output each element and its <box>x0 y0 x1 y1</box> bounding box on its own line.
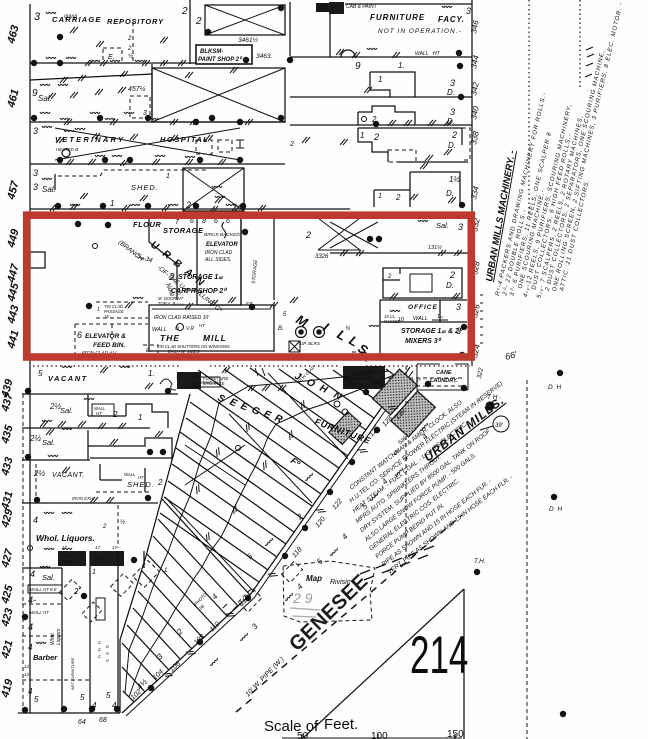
svg-text:T.H.: T.H. <box>474 558 486 565</box>
svg-text:4: 4 <box>28 622 33 632</box>
svg-text:HOSPITAL: HOSPITAL <box>160 135 209 144</box>
svg-text:Sal.: Sal. <box>38 94 52 103</box>
svg-text:214: 214 <box>410 625 468 685</box>
svg-text:1½: 1½ <box>449 175 460 184</box>
svg-text:ART FURNITURE: ART FURNITURE <box>70 658 75 691</box>
svg-text:12: 12 <box>24 664 30 669</box>
svg-text:6: 6 <box>226 218 230 225</box>
svg-text:MILL: MILL <box>203 333 227 343</box>
svg-text:IRON CLAD: IRON CLAD <box>205 250 233 256</box>
svg-text:8: 8 <box>202 218 206 225</box>
svg-text:3: 3 <box>456 326 461 336</box>
svg-text:2½: 2½ <box>29 434 41 443</box>
svg-text:Map: Map <box>306 574 322 583</box>
svg-text:4: 4 <box>33 515 38 525</box>
svg-text:2: 2 <box>181 6 188 17</box>
svg-text:1: 1 <box>378 193 382 200</box>
svg-text:3: 3 <box>450 107 455 117</box>
svg-text:WALL: WALL <box>413 316 428 322</box>
svg-text:5: 5 <box>106 691 111 700</box>
svg-text:ψψψ: ψψψ <box>64 14 78 20</box>
svg-text:1: 1 <box>378 75 382 84</box>
svg-text:2: 2 <box>168 272 175 283</box>
svg-text:2: 2 <box>373 132 379 142</box>
svg-text:1.: 1. <box>164 568 169 574</box>
svg-text:D.: D. <box>447 88 455 97</box>
svg-text:5: 5 <box>34 695 39 704</box>
svg-text:4-: 4- <box>28 595 36 605</box>
svg-text:1: 1 <box>97 307 100 313</box>
svg-text:2.: 2. <box>97 647 102 652</box>
svg-text:Barber: Barber <box>33 653 58 662</box>
svg-text:1: 1 <box>92 569 96 576</box>
svg-text:VETERINARY: VETERINARY <box>55 135 125 144</box>
svg-text:D H: D H <box>549 506 563 513</box>
svg-text:VACANT.: VACANT. <box>52 472 85 479</box>
svg-text:3: 3 <box>33 126 38 136</box>
svg-text:Sal.: Sal. <box>42 438 55 447</box>
svg-text:2: 2 <box>305 230 311 240</box>
svg-text:LAUNDRY.: LAUNDRY. <box>430 378 458 384</box>
svg-text:SHED.: SHED. <box>131 183 159 192</box>
svg-text:3: 3 <box>450 78 455 88</box>
svg-text:2: 2 <box>449 270 455 280</box>
svg-text:17: 17 <box>62 545 68 550</box>
svg-text:CARPR SHOP 2⁰: CARPR SHOP 2⁰ <box>171 287 227 295</box>
svg-text:10: 10 <box>398 317 405 323</box>
svg-text:2: 2 <box>112 410 118 419</box>
svg-text:¼: ¼ <box>345 326 350 332</box>
svg-text:3326: 3326 <box>315 254 329 260</box>
svg-text:1.: 1. <box>398 61 405 70</box>
svg-text:HT: HT <box>96 411 102 416</box>
svg-text:½: ½ <box>128 53 133 60</box>
svg-text:5: 5 <box>80 693 85 702</box>
svg-text:MIXERS 3⁰: MIXERS 3⁰ <box>405 337 442 345</box>
svg-text:NOT IN OPERATION.-: NOT IN OPERATION.- <box>378 28 462 35</box>
svg-text:D H: D H <box>548 384 562 391</box>
svg-text:1: 1 <box>138 413 142 422</box>
svg-text:CAB & PAINT: CAB & PAINT <box>346 4 378 10</box>
svg-text:1.: 1. <box>148 369 155 378</box>
svg-text:6: 6 <box>77 330 82 340</box>
svg-text:VACANT: VACANT <box>48 374 88 383</box>
svg-text:2.: 2. <box>97 640 102 645</box>
svg-text:2: 2 <box>127 46 132 52</box>
svg-text:2: 2 <box>127 36 132 42</box>
svg-text:ALL SIDES.: ALL SIDES. <box>204 257 232 263</box>
svg-text:BRICK BACKED: BRICK BACKED <box>204 232 240 238</box>
svg-text:WALL: WALL <box>415 51 429 57</box>
svg-text:THE: THE <box>160 333 180 343</box>
svg-text:17: 17 <box>95 545 101 550</box>
svg-text:Liquors: Liquors <box>56 628 62 645</box>
svg-text:3: 3 <box>458 222 463 232</box>
svg-text:IRON EXH.: IRON EXH. <box>72 496 94 501</box>
svg-text:64: 64 <box>78 719 86 726</box>
svg-text:IRON CLAD RAISED 10': IRON CLAD RAISED 10' <box>154 315 210 321</box>
svg-text:3461½: 3461½ <box>238 36 258 44</box>
svg-text:12: 12 <box>24 672 30 677</box>
svg-text:2: 2 <box>157 478 163 487</box>
svg-text:2: 2 <box>395 193 401 202</box>
svg-text:4: 4 <box>30 569 35 579</box>
svg-text:WALL HT: WALL HT <box>30 610 49 615</box>
svg-text:REPOSITORY: REPOSITORY <box>107 17 164 26</box>
svg-text:HT: HT <box>433 51 441 57</box>
svg-text:Sal.: Sal. <box>436 221 449 230</box>
svg-text:1ₛₜ: 1ₛₜ <box>437 314 444 320</box>
svg-text:FEED BIN.: FEED BIN. <box>93 342 125 349</box>
svg-text:V.R: V.R <box>186 326 194 332</box>
svg-text:2½: 2½ <box>33 469 45 478</box>
svg-text:FURNITURE: FURNITURE <box>370 13 425 22</box>
svg-text:4: 4 <box>28 687 33 696</box>
svg-text:2: 2 <box>102 524 107 530</box>
svg-text:6: 6 <box>190 218 194 225</box>
svg-text:2: 2 <box>451 130 457 140</box>
svg-text:131½: 131½ <box>428 244 442 251</box>
svg-text:2.: 2. <box>97 654 102 659</box>
svg-text:B.: B. <box>278 326 284 332</box>
svg-text:457½: 457½ <box>128 85 146 93</box>
svg-text:68: 68 <box>99 717 107 724</box>
svg-text:SHOP: SHOP <box>60 560 71 564</box>
svg-text:T H ·: T H · <box>487 394 501 401</box>
svg-text:6: 6 <box>214 218 218 225</box>
svg-text:UP. BLRS: UP. BLRS <box>300 341 320 346</box>
svg-text:1: 1 <box>360 131 364 140</box>
svg-text:2: 2 <box>195 16 202 27</box>
svg-text:3: 3 <box>33 182 38 192</box>
svg-text:2: 2 <box>393 450 398 457</box>
svg-text:50: 50 <box>297 731 309 739</box>
svg-text:2 9: 2 9 <box>292 590 313 606</box>
svg-text:B: B <box>106 644 109 649</box>
svg-text:PAINT SHOP 2⁰: PAINT SHOP 2⁰ <box>198 56 243 63</box>
svg-text:MACH.: MACH. <box>60 555 72 559</box>
svg-text:CANE: CANE <box>436 370 452 376</box>
svg-text:1: 1 <box>110 199 114 208</box>
svg-text:5: 5 <box>38 369 43 378</box>
svg-text:SHED.: SHED. <box>127 480 155 489</box>
svg-text:FLOUR: FLOUR <box>133 220 161 229</box>
svg-text:FACY.: FACY. <box>438 15 465 24</box>
svg-text:½: ½ <box>120 519 125 526</box>
svg-text:WALL: WALL <box>124 472 136 477</box>
svg-text:Sal.: Sal. <box>42 573 55 582</box>
svg-text:STORAGE: STORAGE <box>163 226 204 235</box>
svg-text:3: 3 <box>466 6 471 16</box>
svg-text:1: 1 <box>166 173 170 180</box>
svg-text:4: 4 <box>28 643 33 652</box>
svg-text:2: 2 <box>73 587 79 596</box>
svg-text:9: 9 <box>355 61 361 72</box>
svg-text:Sal.: Sal. <box>60 406 73 415</box>
svg-text:OFFICE: OFFICE <box>408 304 438 311</box>
svg-text:R: R <box>106 658 109 663</box>
svg-text:G½: G½ <box>332 4 339 9</box>
svg-text:Feet.: Feet. <box>324 716 358 733</box>
svg-text:39′: 39′ <box>495 423 504 429</box>
svg-text:STORAGE 1ₛₜ & 2⁰: STORAGE 1ₛₜ & 2⁰ <box>401 327 463 335</box>
svg-text:WALL HT 8 E: WALL HT 8 E <box>30 587 57 592</box>
svg-text:REPOSITORY: REPOSITORY <box>346 376 372 381</box>
svg-text:17: 17 <box>112 545 118 550</box>
svg-text:R: R <box>106 651 109 656</box>
svg-text:ELEVATOR &: ELEVATOR & <box>85 333 126 340</box>
svg-text:BLKSM-: BLKSM- <box>200 49 223 55</box>
svg-text:HEATED B.: HEATED B. <box>56 147 79 152</box>
svg-text:STORAGE 1ₛₜ: STORAGE 1ₛₜ <box>178 274 224 281</box>
svg-text:Whol. Liquors.: Whol. Liquors. <box>36 533 95 543</box>
svg-text:SMITHY: SMITHY <box>93 557 108 561</box>
svg-text:D.: D. <box>448 141 456 150</box>
svg-text:3463.: 3463. <box>256 53 272 60</box>
svg-text:D.: D. <box>446 189 454 198</box>
svg-text:Sal.: Sal. <box>42 185 56 194</box>
svg-text:2: 2 <box>387 274 392 280</box>
svg-text:E.: E. <box>146 348 151 354</box>
svg-text:ELEVATOR: ELEVATOR <box>206 242 238 248</box>
svg-text:2: 2 <box>289 141 294 148</box>
svg-text:3: 3 <box>33 168 38 178</box>
svg-text:BRIDGE 3⁰: BRIDGE 3⁰ <box>195 380 219 385</box>
svg-text:D.: D. <box>446 281 454 290</box>
svg-text:Scale of: Scale of <box>264 718 319 735</box>
svg-text:3: 3 <box>34 11 41 23</box>
svg-text:O: O <box>175 326 179 332</box>
svg-text:3: 3 <box>456 302 461 312</box>
